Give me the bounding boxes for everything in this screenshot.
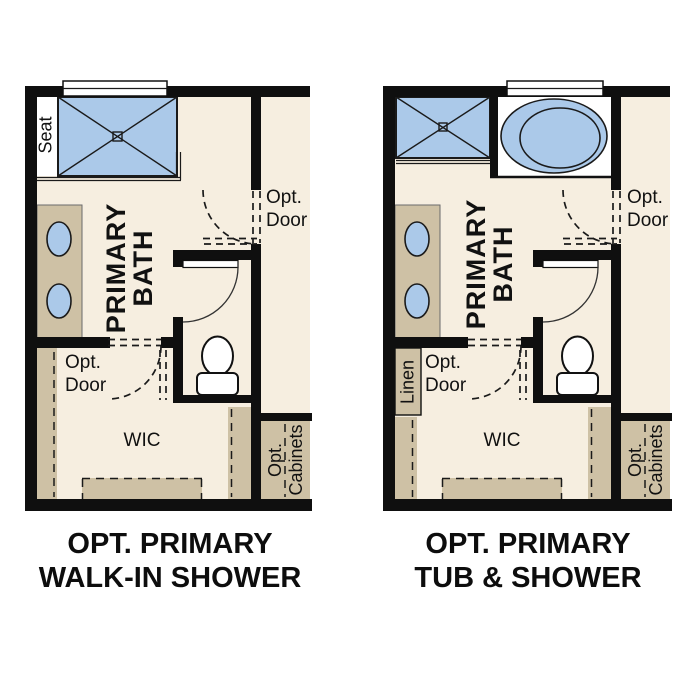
- opt-cabinets-label: Opt. Cabinets: [265, 424, 307, 495]
- caption-line1: OPT. PRIMARY: [24, 527, 316, 561]
- vanity-sinks: [37, 205, 82, 338]
- room-name-primary-bath: PRIMARY BATH: [103, 203, 157, 334]
- tub-symbol: [490, 97, 621, 177]
- wic-label: WIC: [462, 429, 542, 452]
- seat-label: Seat: [36, 116, 57, 153]
- opt-door-wic-label: Opt. Door: [65, 351, 106, 397]
- caption-walk-in-shower: OPT. PRIMARY WALK-IN SHOWER: [24, 527, 316, 595]
- room-name-primary-bath: PRIMARY BATH: [463, 199, 517, 330]
- shower-symbol: [58, 97, 177, 176]
- caption-line1: OPT. PRIMARY: [382, 527, 674, 561]
- caption-tub-and-shower: OPT. PRIMARY TUB & SHOWER: [382, 527, 674, 595]
- opt-cabinets-label: Opt. Cabinets: [625, 424, 667, 495]
- window-symbol: [507, 81, 603, 96]
- shower-symbol: [396, 97, 490, 164]
- wic-label: WIC: [102, 429, 182, 452]
- opt-door-hall-label: Opt. Door: [266, 186, 307, 232]
- window-symbol: [63, 81, 167, 96]
- floorplan-image: Seat PRIMARY BATH Opt. Door Opt. Door WI…: [0, 0, 687, 687]
- opt-door-wic-label: Opt. Door: [425, 351, 466, 397]
- opt-door-hall-label: Opt. Door: [627, 186, 668, 232]
- vanity-sinks: [395, 205, 440, 338]
- caption-line2: WALK-IN SHOWER: [24, 561, 316, 595]
- linen-label: Linen: [398, 360, 419, 404]
- caption-line2: TUB & SHOWER: [382, 561, 674, 595]
